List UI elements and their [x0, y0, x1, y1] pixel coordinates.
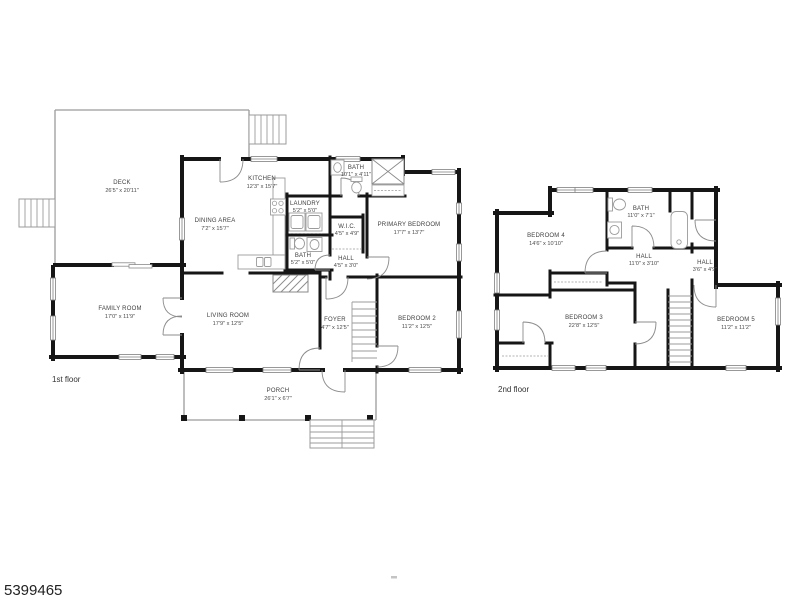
room-label-bath-l1: BATH: [295, 253, 311, 259]
room-label-bath-f2: BATH: [633, 206, 649, 212]
room-dims-bedroom2: 11'2" x 12'5": [402, 324, 432, 330]
room-dims-wic: 4'5" x 4'9": [335, 231, 359, 237]
room-label-bedroom5: BEDROOM 5: [717, 317, 755, 323]
room-label-wic: W.I.C.: [338, 224, 356, 230]
second-floor-staircase: [668, 296, 692, 362]
bedroom4-closet: [552, 282, 605, 289]
room-dims-bath-f2: 11'0" x 7'1": [627, 213, 654, 219]
room-dims-family-room: 17'0" x 11'9": [105, 314, 135, 320]
room-label-foyer: FOYER: [324, 317, 346, 323]
room-dims-dining: 7'2" x 15'7": [201, 226, 229, 232]
deck-stairs-top: [249, 115, 286, 144]
kitchen-counter: [238, 178, 285, 269]
room-label-hall-f2: HALL: [636, 254, 652, 260]
room-label-bedroom4: BEDROOM 4: [527, 233, 565, 239]
room-dims-hall-small: 3'6" x 4'9": [693, 267, 717, 273]
family-room-slider: [112, 263, 152, 268]
room-dims-foyer: 4'7" x 12'5": [321, 325, 349, 331]
room-dims-laundry: 5'2" x 5'0": [293, 208, 317, 214]
room-dims-primary-bedroom: 17'7" x 13'7": [394, 230, 425, 236]
room-dims-bath-l1: 5'2" x 5'0": [291, 260, 315, 266]
first-floor-interior-walls: [182, 157, 461, 372]
room-label-dining: DINING AREA: [195, 218, 236, 224]
floor-plan-page: DECK 26'5" x 20'11" KITCHEN 12'3" x 15'7…: [0, 0, 800, 600]
room-label-porch: PORCH: [267, 388, 290, 394]
room-dims-living-room: 17'9" x 12'5": [213, 321, 244, 327]
second-bath-sink: [608, 222, 622, 238]
porch-steps: [310, 420, 374, 448]
room-label-kitchen: KITCHEN: [248, 176, 276, 182]
room-label-bedroom2: BEDROOM 2: [398, 316, 436, 322]
first-floor-plan: DECK 26'5" x 20'11" KITCHEN 12'3" x 15'7…: [19, 110, 462, 448]
shower: [372, 159, 404, 184]
deck-stairs-left: [19, 199, 55, 227]
room-dims-bedroom4: 14'6" x 10'10": [529, 241, 563, 247]
room-label-bath-top: BATH: [348, 165, 364, 171]
stove: [271, 199, 286, 215]
room-label-family-room: FAMILY ROOM: [98, 306, 141, 312]
watermark-mark: [391, 576, 397, 579]
room-dims-bath-top: 10'1" x 4'11": [341, 172, 371, 178]
room-dims-hall-f1: 4'5" x 3'0": [334, 263, 358, 269]
listing-id: 5399465: [4, 582, 62, 599]
bathtub: [671, 212, 688, 249]
room-label-hall-small: HALL: [697, 260, 713, 266]
room-label-bedroom3: BEDROOM 3: [565, 315, 603, 321]
floor-plan-canvas: DECK 26'5" x 20'11" KITCHEN 12'3" x 15'7…: [0, 0, 800, 600]
room-label-deck: DECK: [113, 180, 130, 186]
room-dims-kitchen: 12'3" x 15'7": [247, 184, 278, 190]
room-label-laundry: LAUNDRY: [290, 201, 320, 207]
room-dims-porch: 26'1" x 6'7": [264, 396, 292, 402]
second-bath-toilet: [608, 198, 626, 211]
room-label-primary-bedroom: PRIMARY BEDROOM: [378, 222, 441, 228]
lower-bath-toilet: [290, 238, 305, 249]
room-dims-deck: 26'5" x 20'11": [105, 188, 138, 194]
first-floor-label: 1st floor: [52, 375, 81, 384]
room-label-hall-f1: HALL: [338, 256, 354, 262]
lower-bath-sink: [307, 238, 322, 252]
foyer-staircase: [352, 302, 377, 362]
top-bath-toilet: [351, 177, 362, 193]
fireplace: [273, 275, 308, 292]
deck-outline: [55, 110, 249, 265]
primary-closet: [372, 185, 404, 196]
room-dims-bedroom3: 22'8" x 12'5": [569, 323, 600, 329]
room-dims-hall-f2: 11'0" x 3'10": [629, 261, 659, 267]
second-floor-label: 2nd floor: [498, 385, 529, 394]
room-dims-bedroom5: 11'2" x 11'2": [721, 325, 751, 331]
room-label-living-room: LIVING ROOM: [207, 313, 249, 319]
washer-dryer: [289, 213, 322, 231]
second-floor-plan: BEDROOM 4 14'6" x 10'10" BATH 11'0" x 7'…: [495, 188, 781, 395]
